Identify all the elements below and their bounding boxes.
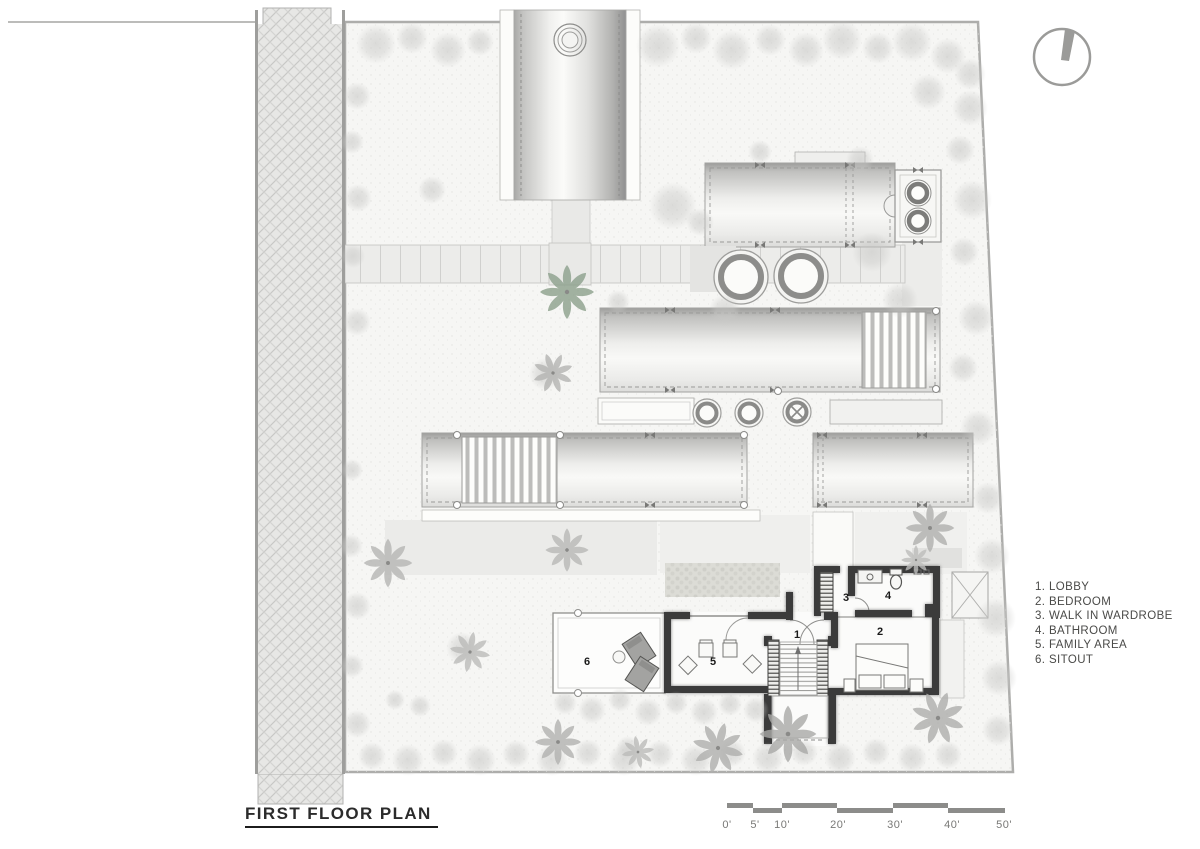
- scale-label: 0': [722, 819, 731, 831]
- planter: [830, 400, 942, 424]
- room-number-lobby: 1: [794, 629, 800, 641]
- legend-item: 6. SITOUT: [1035, 653, 1173, 668]
- room-number-bedroom: 2: [877, 626, 883, 638]
- scale-label: 30': [887, 819, 903, 831]
- legend-item: 4. BATHROOM: [1035, 624, 1173, 639]
- legend-item: 2. BEDROOM: [1035, 595, 1173, 610]
- room-legend: 1. LOBBY 2. BEDROOM 3. WALK IN WARDROBE …: [1035, 580, 1173, 667]
- entrance-vault-roof: [500, 10, 640, 200]
- scale-bar: 0' 5' 10' 20' 30' 40' 50': [722, 803, 1012, 831]
- room-number-wardrobe: 3: [843, 592, 849, 604]
- scale-label: 20': [830, 819, 846, 831]
- room-number-sitout: 6: [584, 656, 590, 668]
- legend-item: 3. WALK IN WARDROBE: [1035, 609, 1173, 624]
- toilet-icon: [891, 575, 902, 589]
- stair-rail-hatch: [817, 640, 828, 696]
- column-icon: [575, 690, 582, 697]
- wardrobe-hatch: [820, 572, 833, 612]
- scale-label: 5': [750, 819, 759, 831]
- plan-drawing: 1 2 3 4 5 6 0' 5' 10' 20' 30' 40' 50': [0, 0, 1200, 849]
- scale-label: 40': [944, 819, 960, 831]
- drawing-title: FIRST FLOOR PLAN: [245, 804, 438, 828]
- stair-rail-hatch: [768, 640, 779, 696]
- column-icon: [575, 610, 582, 617]
- pergola-slats: [862, 312, 926, 388]
- room-number-family: 5: [710, 656, 716, 668]
- floor-plan-sheet: 1 2 3 4 5 6 0' 5' 10' 20' 30' 40' 50': [0, 0, 1200, 849]
- scale-label: 10': [774, 819, 790, 831]
- round-skylights-row: [693, 398, 811, 427]
- pergola-slats: [462, 437, 557, 503]
- room-number-bathroom: 4: [885, 590, 892, 602]
- north-arrow-icon: [1034, 29, 1090, 85]
- side-deck: [940, 620, 964, 698]
- legend-item: 5. FAMILY AREA: [1035, 638, 1173, 653]
- road: [255, 8, 345, 804]
- scale-label: 50': [996, 819, 1012, 831]
- planted-bed: [665, 563, 780, 597]
- legend-item: 1. LOBBY: [1035, 580, 1173, 595]
- east-vault-roof: [813, 432, 973, 574]
